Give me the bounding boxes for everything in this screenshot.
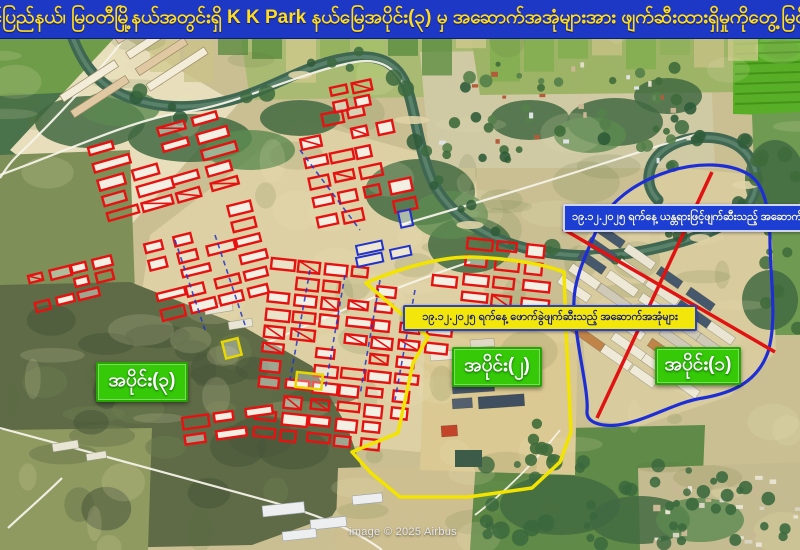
title-text: ကရင်ပြည်နယ်၊ မြဝတီမြို့နယ်အတွင်းရှိ K K … xyxy=(0,5,800,33)
annotated-satellite-image: ကရင်ပြည်နယ်၊ မြဝတီမြို့နယ်အတွင်းရှိ K K … xyxy=(0,0,800,550)
section-label-1: အပိုင်း(၁) xyxy=(655,347,741,385)
section-label-2: အပိုင်း(၂) xyxy=(452,347,542,387)
title-banner: ကရင်ပြည်နယ်၊ မြဝတီမြို့နယ်အတွင်းရှိ K K … xyxy=(0,0,800,39)
satellite-map xyxy=(0,0,800,550)
machine-demolition-note: ၁၉.၁၂.၂၀၂၅ ရက်နေ့ ယန္တရားဖြင့်ဖျက်ဆီးသည့… xyxy=(563,204,800,232)
explosive-demolition-note: ၁၉.၁၂.၂၀၂၅ ရက်နေ့ ဖောက်ခွဲဖျက်ဆီးသည့် အဆ… xyxy=(403,305,697,331)
section-label-3: အပိုင်း(၃) xyxy=(96,362,188,402)
image-credit: image © 2025 Airbus xyxy=(349,526,457,538)
